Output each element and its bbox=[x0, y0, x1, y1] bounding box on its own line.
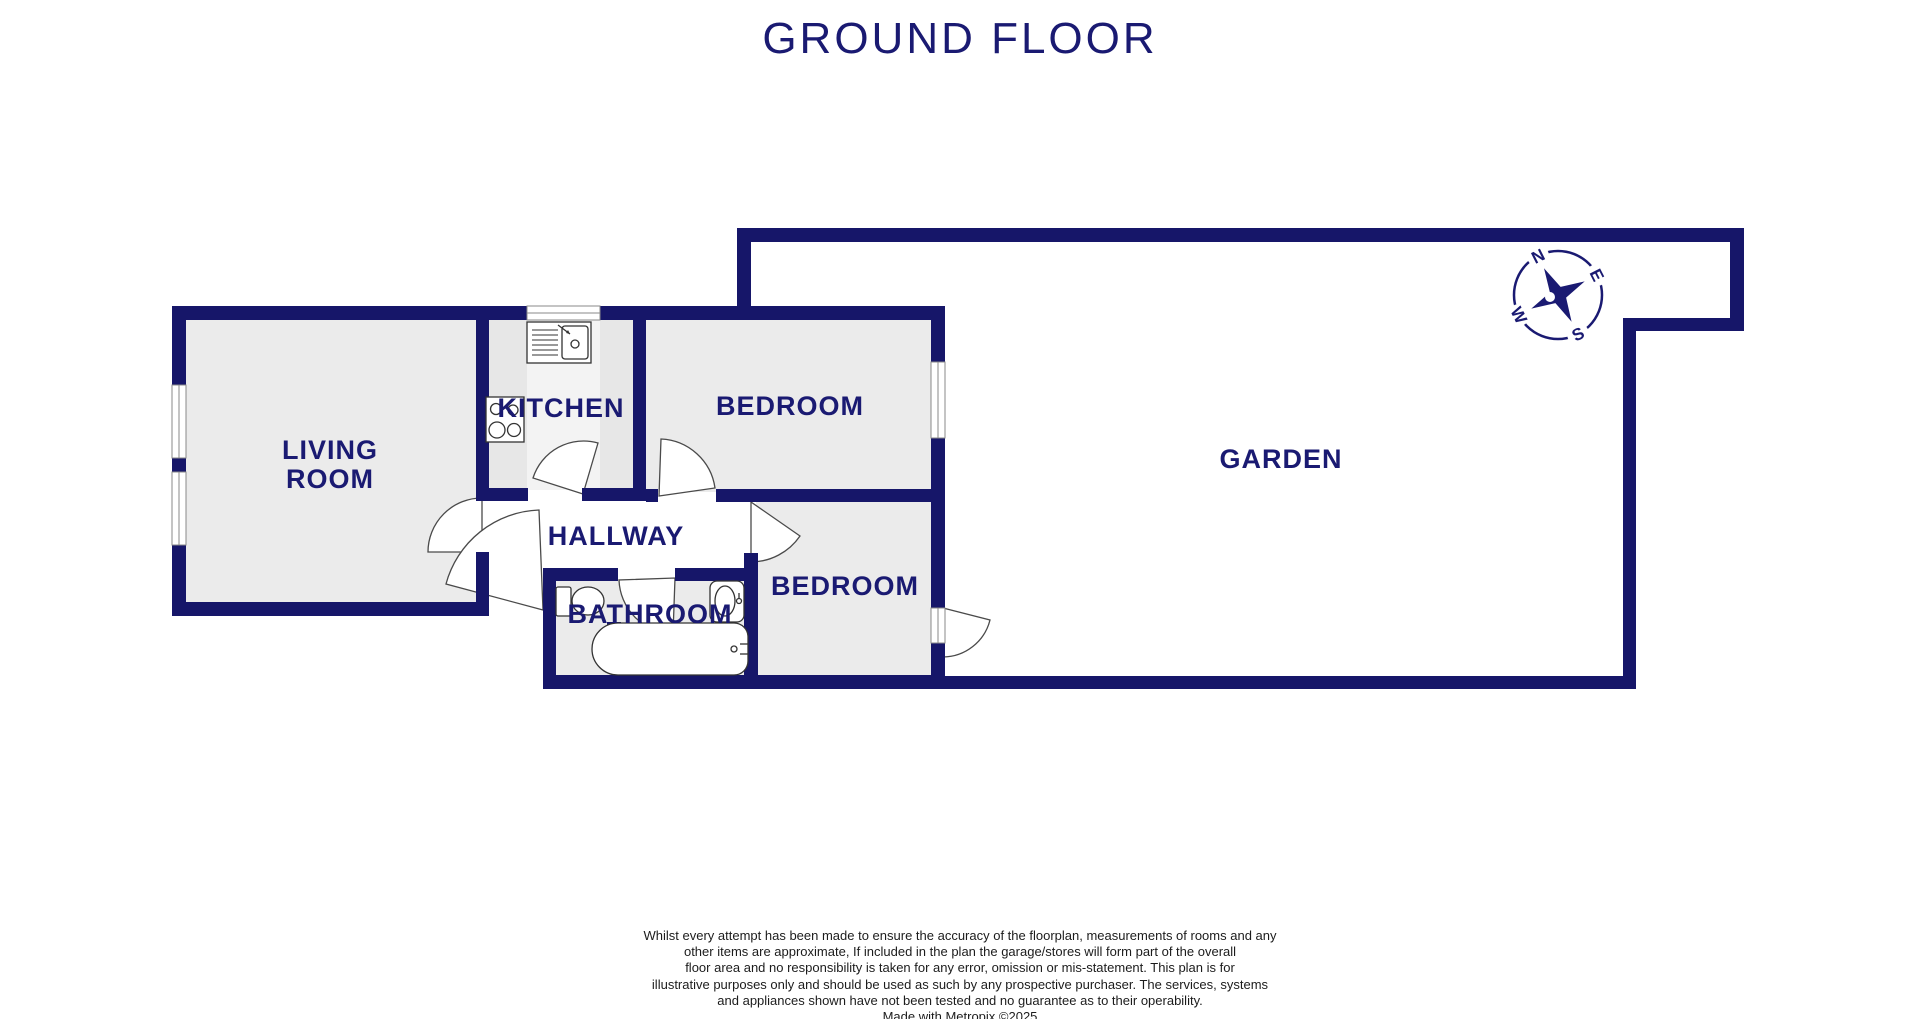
compass-icon: N E S W bbox=[1506, 245, 1608, 345]
disclaimer-line-3: floor area and no responsibility is take… bbox=[0, 960, 1920, 976]
window-kitchen bbox=[527, 306, 600, 320]
floorplan-drawing: N E S W LIVING ROOM KITCHEN BEDROOM HALL… bbox=[0, 0, 1920, 1019]
disclaimer-line-5: and appliances shown have not been teste… bbox=[0, 993, 1920, 1009]
disclaimer-line-1: Whilst every attempt has been made to en… bbox=[0, 928, 1920, 944]
room-label-living-room-line2: ROOM bbox=[286, 464, 374, 494]
compass-west-label: W bbox=[1506, 304, 1531, 328]
room-label-garden: GARDEN bbox=[1219, 444, 1342, 474]
room-label-living-room-line1: LIVING bbox=[282, 435, 378, 465]
window-bedroom-top bbox=[931, 362, 945, 438]
compass-star-notch bbox=[1545, 292, 1555, 302]
window-living-room-2 bbox=[172, 472, 186, 545]
disclaimer-line-6: Made with Metropix ©2025 bbox=[0, 1009, 1920, 1019]
floorplan-page: GROUND FLOOR bbox=[0, 0, 1920, 1019]
disclaimer-line-4: illustrative purposes only and should be… bbox=[0, 977, 1920, 993]
window-living-room-1 bbox=[172, 385, 186, 458]
room-label-hallway: HALLWAY bbox=[548, 521, 685, 551]
room-label-bedroom-bottom: BEDROOM bbox=[771, 571, 919, 601]
bathtub-icon bbox=[592, 623, 748, 675]
door-arc-garden-door bbox=[943, 608, 990, 657]
room-label-bedroom-top: BEDROOM bbox=[716, 391, 864, 421]
disclaimer-line-2: other items are approximate, If included… bbox=[0, 944, 1920, 960]
garden-door-leaf bbox=[931, 608, 945, 643]
compass-star bbox=[1531, 268, 1584, 321]
kitchen-sink-icon bbox=[527, 322, 591, 363]
disclaimer: Whilst every attempt has been made to en… bbox=[0, 928, 1920, 1019]
room-label-kitchen: KITCHEN bbox=[498, 393, 625, 423]
room-label-bathroom: BATHROOM bbox=[568, 599, 733, 629]
